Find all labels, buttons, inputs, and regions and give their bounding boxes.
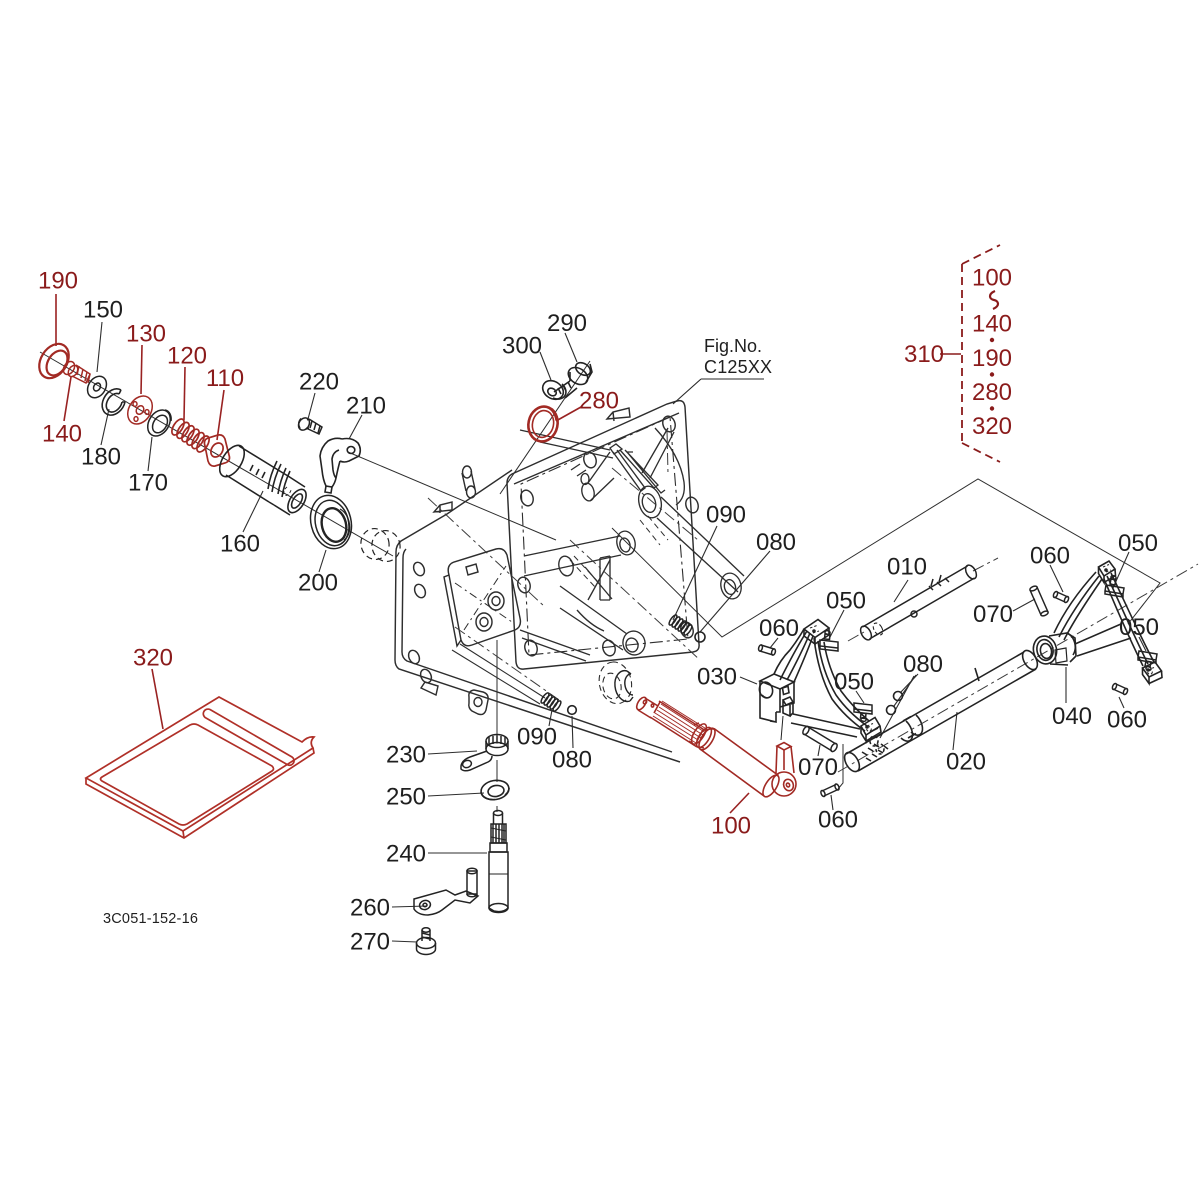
svg-text:260: 260 xyxy=(350,895,390,922)
svg-text:060: 060 xyxy=(759,615,799,642)
svg-text:080: 080 xyxy=(903,651,943,678)
svg-text:010: 010 xyxy=(887,554,927,581)
svg-text:070: 070 xyxy=(798,754,838,781)
svg-text:230: 230 xyxy=(386,742,426,769)
svg-text:320: 320 xyxy=(133,645,173,672)
svg-text:070: 070 xyxy=(973,601,1013,628)
svg-text:210: 210 xyxy=(346,393,386,420)
svg-text:220: 220 xyxy=(299,369,339,396)
svg-text:030: 030 xyxy=(697,664,737,691)
svg-text:Fig.No.: Fig.No. xyxy=(704,336,762,356)
svg-text:050: 050 xyxy=(834,669,874,696)
svg-text:080: 080 xyxy=(552,747,592,774)
svg-text:120: 120 xyxy=(167,343,207,370)
svg-text:C125XX: C125XX xyxy=(704,357,772,377)
svg-text:020: 020 xyxy=(946,749,986,776)
svg-text:100: 100 xyxy=(972,265,1012,292)
svg-text:240: 240 xyxy=(386,841,426,868)
svg-text:180: 180 xyxy=(81,444,121,471)
svg-text:250: 250 xyxy=(386,784,426,811)
svg-text:300: 300 xyxy=(502,333,542,360)
svg-text:200: 200 xyxy=(298,570,338,597)
svg-text:280: 280 xyxy=(972,379,1012,406)
svg-text:150: 150 xyxy=(83,297,123,324)
svg-text:130: 130 xyxy=(126,321,166,348)
svg-text:320: 320 xyxy=(972,413,1012,440)
svg-text:310: 310 xyxy=(904,341,944,368)
svg-text:270: 270 xyxy=(350,929,390,956)
svg-text:060: 060 xyxy=(818,807,858,834)
svg-text:160: 160 xyxy=(220,531,260,558)
svg-text:190: 190 xyxy=(38,268,78,295)
svg-text:110: 110 xyxy=(206,365,244,392)
svg-text:290: 290 xyxy=(547,310,587,337)
svg-text:050: 050 xyxy=(1118,530,1158,557)
svg-text:3C051-152-16: 3C051-152-16 xyxy=(103,911,198,927)
svg-text:080: 080 xyxy=(756,529,796,556)
svg-text:140: 140 xyxy=(972,311,1012,338)
svg-text:050: 050 xyxy=(826,588,866,615)
svg-text:190: 190 xyxy=(972,345,1012,372)
svg-text:140: 140 xyxy=(42,421,82,448)
svg-text:090: 090 xyxy=(706,502,746,529)
svg-text:280: 280 xyxy=(579,388,619,415)
svg-text:100: 100 xyxy=(711,813,751,840)
svg-text:040: 040 xyxy=(1052,703,1092,730)
svg-text:060: 060 xyxy=(1107,707,1147,734)
svg-text:170: 170 xyxy=(128,470,168,497)
